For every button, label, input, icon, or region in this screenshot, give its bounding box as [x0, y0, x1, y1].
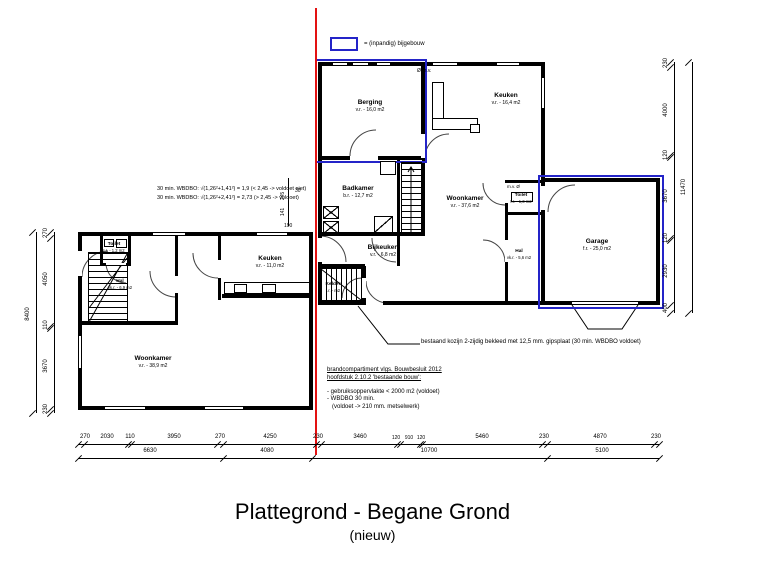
dimension-value: 3670	[43, 351, 49, 381]
room-label-garage: Garagef.r. - 25,0 m2	[557, 238, 637, 252]
door-opening	[421, 134, 425, 158]
dimension-line	[78, 458, 659, 459]
window	[377, 62, 390, 66]
dimension-total: 11470	[681, 169, 687, 205]
mechanical-ventilation-marker: Ø m.v.	[417, 68, 431, 74]
room-label-bijkeuken: Bijkeukenv.r. - 6,8 m2	[343, 244, 423, 258]
dimension-value: 5460	[470, 434, 494, 440]
dimension-total: 8400	[25, 296, 31, 332]
bathroom-vanity	[380, 161, 396, 175]
room-label-hal-nieuw: Halvk.r. - 5,6 m2	[497, 249, 541, 260]
room-label-toilet-bestaand: Toilett.r. - 1,2 m2	[95, 242, 133, 253]
wall	[222, 294, 313, 298]
window	[78, 336, 82, 368]
room-label-keuken-bestaand: Keukenv.r. - 11,0 m2	[230, 255, 310, 269]
dimension-value: 270	[73, 434, 97, 440]
dimension-value: 3950	[162, 434, 186, 440]
drawing-title: Plattegrond - Begane Grond	[0, 499, 745, 525]
dimension-line	[36, 232, 37, 413]
dimension-line	[78, 444, 659, 445]
dimension-value: 120	[663, 140, 669, 170]
window	[333, 62, 347, 66]
window	[433, 62, 457, 66]
red-marker-line	[315, 8, 317, 455]
window	[105, 406, 145, 410]
washer-symbol	[323, 206, 339, 219]
wall	[218, 278, 221, 300]
window	[205, 406, 243, 410]
dimension-line	[288, 178, 289, 226]
door-opening	[350, 156, 378, 160]
dimension-value: 4870	[588, 434, 612, 440]
window	[153, 232, 185, 236]
note-item: - gebruiksoppervlakte < 2000 m2 (voldoet…	[327, 389, 442, 397]
drawing-subtitle: (nieuw)	[0, 527, 745, 543]
room-label-berging: Bergingv.r. - 16,0 m2	[330, 99, 410, 113]
note-item: - WBDBO 30 min.	[327, 396, 442, 404]
room-label-woonkamer-nieuw: Woonkamerv.r. - 37,6 m2	[425, 195, 505, 209]
wbdbo-calculation-2: 30 min. WBDBO: √(1,26²+2,41²) = 2,73 (> …	[157, 195, 299, 201]
door-opening	[78, 251, 82, 276]
dryer-symbol	[323, 221, 339, 234]
dimension-value: 270	[43, 218, 49, 248]
dimension-value: 3460	[348, 434, 372, 440]
dimension-value: 190	[284, 223, 292, 229]
mechanical-ventilation-marker: m.v. Ø	[507, 184, 520, 189]
dimension-value: 4000	[663, 95, 669, 125]
wall	[175, 236, 178, 276]
window	[353, 62, 368, 66]
sink-symbol	[262, 284, 276, 293]
dimension-value: 5100	[582, 448, 622, 454]
legend-label: = (inpandig) bijgebouw	[364, 41, 425, 47]
dimension-value: 2030	[95, 434, 119, 440]
wall	[505, 212, 541, 215]
wall	[218, 236, 221, 260]
dimension-value: 141	[280, 201, 286, 223]
room-label-toilet-nieuw: Toilett.r. - 1,3 m2	[500, 193, 542, 204]
dimension-value: 270	[208, 434, 232, 440]
window	[257, 232, 287, 236]
room-label-hal-bestaand: Halvk.r. - 6,9 m2	[99, 279, 141, 290]
room-label-woonkamer-bestaand: Woonkamerv.r. - 38,9 m2	[113, 355, 193, 369]
dimension-value: 2930	[663, 256, 669, 286]
fire-compartment-note: brandcompartiment vlgs. Bouwbesluit 2012…	[327, 367, 442, 412]
dimension-value: 230	[644, 434, 668, 440]
kozijn-note: bestaand kozijn 2-zijdig bekleed met 12,…	[421, 339, 641, 345]
dimension-value: 120	[389, 435, 403, 441]
wall	[505, 180, 541, 183]
dimension-value: 4250	[258, 434, 282, 440]
stove-symbol	[234, 284, 247, 293]
dimension-value: 4050	[43, 264, 49, 294]
shower-symbol	[374, 216, 393, 233]
dimension-line	[692, 62, 693, 313]
room-label-badkamer: Badkamerb.r. - 12,7 m2	[318, 185, 398, 199]
room-label-keuken-nieuw: Keukenv.r. - 16,4 m2	[466, 92, 546, 106]
dimension-value: 400	[663, 293, 669, 323]
kitchen-appliance	[470, 124, 480, 133]
dimension-value: 230	[306, 434, 330, 440]
dimension-value: 10700	[409, 448, 449, 454]
staircase	[401, 162, 422, 234]
note-heading: brandcompartiment vlgs. Bouwbesluit 2012	[327, 367, 442, 375]
dimension-line	[674, 62, 675, 313]
door-opening	[362, 278, 366, 298]
dimension-value: 120	[414, 435, 428, 441]
dimension-value: 110	[43, 310, 49, 340]
dimension-value: 230	[43, 394, 49, 424]
dimension-value: 3670	[663, 181, 669, 211]
dimension-line	[54, 232, 55, 413]
floor-plan: = (inpandig) bijgebouw Bergingv.r. - 16,…	[0, 0, 770, 565]
note-item: (voldoet -> 210 mm. metselwerk)	[327, 404, 442, 412]
dimension-value: 230	[532, 434, 556, 440]
note-heading: hoofdstuk 2.10.2 'bestaande bouw':	[327, 375, 442, 383]
dimension-value: 230	[663, 48, 669, 78]
dimension-value: 110	[118, 434, 142, 440]
legend-swatch	[330, 37, 358, 51]
door-opening	[318, 238, 322, 262]
dimension-value: 30	[295, 188, 301, 194]
room-label-kelder: Keldert.r. - m2	[313, 282, 353, 293]
wall	[505, 262, 508, 304]
dimension-value: 6630	[130, 448, 170, 454]
wall	[383, 301, 545, 305]
dimension-value: 120	[663, 223, 669, 253]
wall	[318, 301, 366, 305]
dimension-value: 4080	[247, 448, 287, 454]
window	[497, 62, 519, 66]
